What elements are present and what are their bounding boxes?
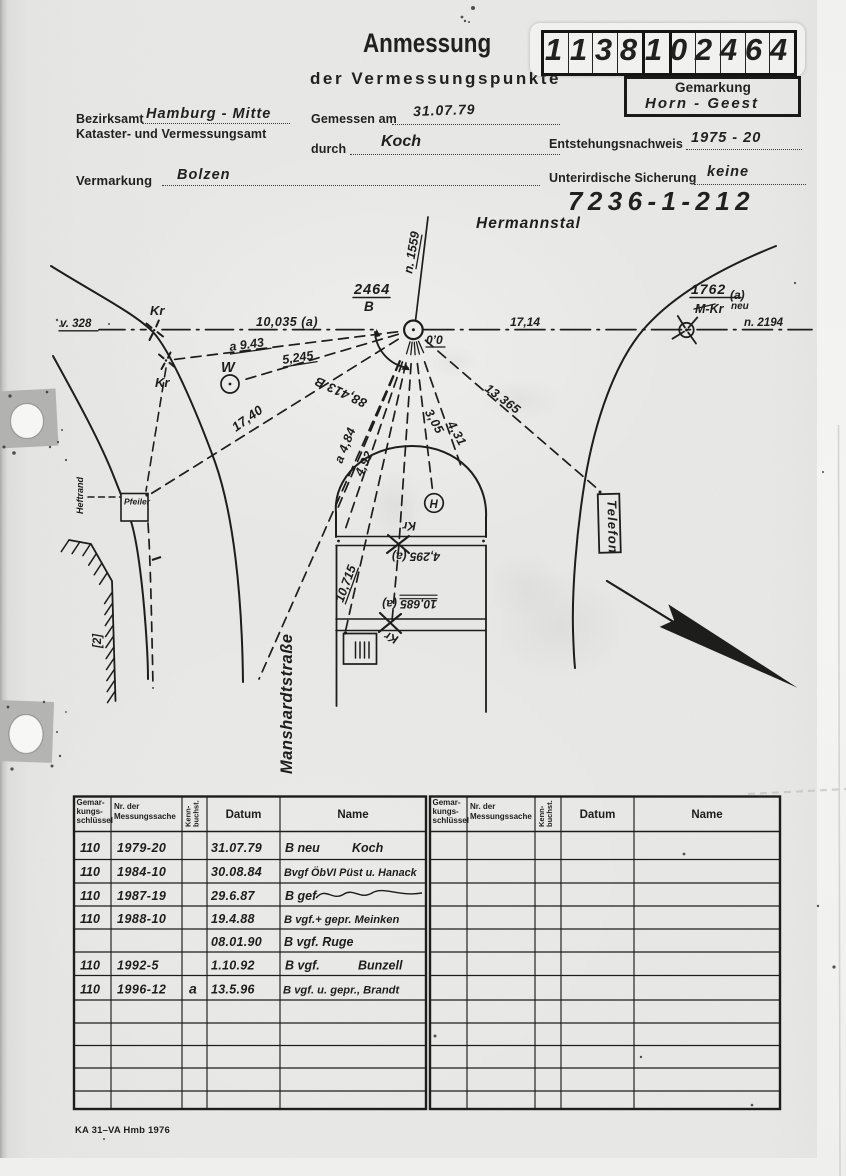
svg-text:Name: Name [691,809,722,821]
svg-text:110: 110 [80,865,100,879]
svg-text:1996-12: 1996-12 [117,983,166,997]
svg-text:29.6.87: 29.6.87 [210,889,256,903]
svg-text:B vgf.+ gepr. Meinken: B vgf.+ gepr. Meinken [284,914,399,926]
svg-text:Gemar-: Gemar- [433,798,461,807]
svg-text:neu: neu [731,301,749,312]
svg-text:Datum: Datum [226,809,262,821]
svg-text:1762: 1762 [691,281,726,297]
svg-text:1.10.92: 1.10.92 [211,959,255,973]
svg-text:Koch: Koch [352,841,384,855]
svg-text:Bunzell: Bunzell [358,959,403,973]
svg-text:08.01.90: 08.01.90 [211,935,262,949]
svg-text:Nr. der: Nr. der [114,802,139,811]
svg-text:H: H [430,499,439,511]
svg-text:17,14: 17,14 [510,315,540,329]
svg-text:Datum: Datum [580,809,616,821]
svg-text:10,035 (a): 10,035 (a) [256,315,318,329]
svg-text:B: B [364,299,374,314]
svg-text:KA 31–VA Hmb 1976: KA 31–VA Hmb 1976 [75,1125,170,1136]
svg-text:110: 110 [80,959,100,973]
svg-text:schlüssel: schlüssel [77,816,113,825]
svg-text:Hermannstal: Hermannstal [476,215,581,232]
svg-text:kungs-: kungs- [433,807,460,816]
svg-text:v. 328: v. 328 [60,318,92,330]
svg-text:Heftrand: Heftrand [75,476,85,514]
svg-text:Messungssache: Messungssache [114,812,176,821]
svg-text:1988-10: 1988-10 [117,912,166,926]
svg-text:Messungssache: Messungssache [470,812,532,821]
svg-text:Gemar-: Gemar- [77,798,105,807]
svg-text:4,295 (a): 4,295 (a) [392,550,441,564]
svg-text:B vgf. u. gepr., Brandt: B vgf. u. gepr., Brandt [283,985,401,997]
svg-text:1979-20: 1979-20 [117,841,166,855]
svg-text:B gef: B gef [285,889,318,903]
svg-text:13.5.96: 13.5.96 [211,983,256,997]
svg-text:M-Kr: M-Kr [695,302,725,316]
svg-text:B vgf.: B vgf. [285,959,320,973]
svg-text:a: a [189,981,197,997]
svg-text:B neu: B neu [285,841,320,855]
svg-text:110: 110 [80,889,100,903]
svg-text:buchst.: buchst. [192,800,201,827]
svg-text:1984-10: 1984-10 [117,865,166,879]
svg-text:19.4.88: 19.4.88 [211,912,255,926]
svg-text:110: 110 [80,983,100,997]
svg-text:1987-19: 1987-19 [117,889,166,903]
svg-text:Name: Name [337,809,368,821]
svg-text:Pfeiler: Pfeiler [124,497,151,507]
svg-text:Kr: Kr [401,519,416,533]
svg-text:schlüssel: schlüssel [433,816,469,825]
svg-text:[2]: [2] [92,633,104,649]
svg-text:31.07.79: 31.07.79 [211,841,262,855]
svg-text:B vgf. Ruge: B vgf. Ruge [284,935,353,949]
svg-text:Telefon: Telefon [604,500,620,555]
svg-text:Manshardtstraße: Manshardtstraße [278,634,296,774]
svg-text:0’0: 0’0 [426,333,443,347]
svg-text:110: 110 [80,912,100,926]
svg-text:110: 110 [80,841,100,855]
svg-text:Kr: Kr [150,303,165,318]
svg-text:kungs-: kungs- [77,807,104,816]
svg-text:Bvgf ÖbVI Püst u. Hanack: Bvgf ÖbVI Püst u. Hanack [284,866,418,879]
svg-text:2464: 2464 [353,282,390,298]
svg-text:buchst.: buchst. [545,800,554,827]
svg-text:(a): (a) [730,288,745,302]
svg-text:W: W [221,360,236,376]
svg-text:30.08.84: 30.08.84 [211,865,262,879]
svg-text:Nr. der: Nr. der [470,802,495,811]
svg-text:n. 2194: n. 2194 [744,317,784,329]
svg-text:1992-5: 1992-5 [117,959,159,973]
